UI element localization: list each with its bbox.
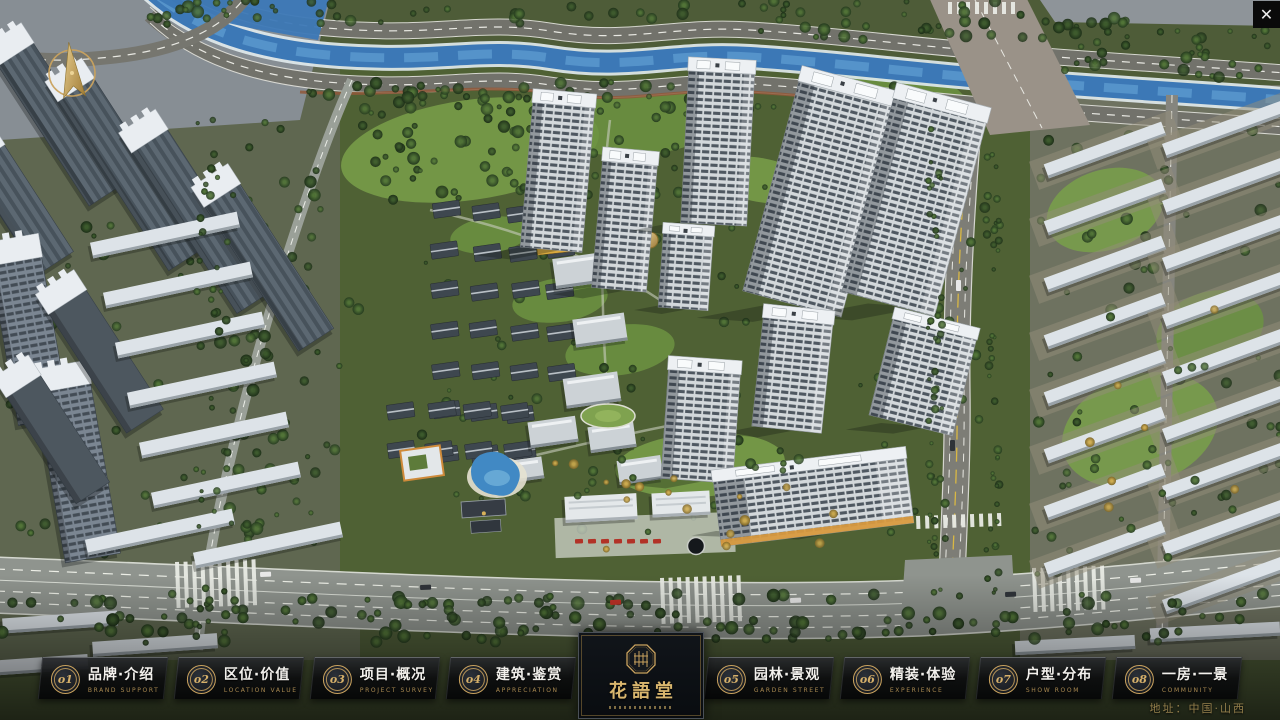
nav-badge: o3: [323, 664, 352, 693]
nav-subtitle: LOCATION VALUE: [224, 687, 298, 694]
nav-title: 区位·价值: [224, 664, 298, 684]
nav-subtitle: PROJECT SURVEY: [360, 687, 434, 694]
project-logo-title: 花語堂: [604, 677, 678, 703]
nav-badge: o4: [459, 664, 488, 693]
nav-subtitle: SHOW ROOM: [1026, 687, 1092, 694]
nav-item-interior[interactable]: o6 精装·体验EXPERIENCE: [840, 657, 970, 699]
nav-title: 精装·体验: [890, 664, 956, 684]
nav-badge: o1: [51, 664, 80, 693]
nav-badge: o7: [989, 664, 1018, 693]
nav-title: 品牌·介绍: [88, 664, 160, 684]
nav-subtitle: APPRECIATION: [496, 687, 562, 694]
nav-subtitle: BRAND SUPPORT: [88, 687, 160, 694]
nav-badge: o8: [1125, 664, 1154, 693]
nav-badge: o6: [853, 664, 882, 693]
compass-icon: [42, 40, 102, 106]
nav-item-brand[interactable]: o1 品牌·介绍BRAND SUPPORT: [38, 657, 168, 699]
nav-item-views[interactable]: o8 一房·一景COMMUNITY: [1112, 657, 1242, 699]
nav-subtitle: GARDEN STREET: [754, 687, 825, 694]
nav-badge: o2: [187, 664, 216, 693]
project-address: 地址：中国·山西: [1150, 700, 1247, 716]
sales-presentation-screen: ✕ o1 品牌·介绍BRAND SUPPORT o2 区位·价值LOCATION…: [0, 0, 1280, 720]
nav-title: 园林·景观: [754, 664, 825, 684]
nav-item-floorplans[interactable]: o7 户型·分布SHOW ROOM: [976, 657, 1106, 699]
project-logo-panel[interactable]: 花語堂: [578, 632, 704, 719]
nav-title: 建筑·鉴赏: [496, 664, 562, 684]
nav-item-project[interactable]: o3 项目·概况PROJECT SURVEY: [310, 657, 440, 699]
nav-subtitle: EXPERIENCE: [890, 687, 956, 694]
project-logo-tagline: [609, 706, 673, 709]
nav-title: 一房·一景: [1162, 664, 1228, 684]
nav-title: 户型·分布: [1026, 664, 1092, 684]
nav-item-location[interactable]: o2 区位·价值LOCATION VALUE: [174, 657, 304, 699]
nav-badge: o5: [717, 664, 746, 693]
close-icon: ✕: [1260, 7, 1273, 23]
nav-subtitle: COMMUNITY: [1162, 687, 1228, 694]
nav-title: 项目·概况: [360, 664, 434, 684]
nav-item-architecture[interactable]: o4 建筑·鉴赏APPRECIATION: [446, 657, 576, 699]
masterplan-render: [0, 0, 1280, 720]
nav-item-garden[interactable]: o5 园林·景观GARDEN STREET: [704, 657, 834, 699]
close-button[interactable]: ✕: [1253, 1, 1280, 28]
logo-seal-icon: [625, 643, 657, 675]
